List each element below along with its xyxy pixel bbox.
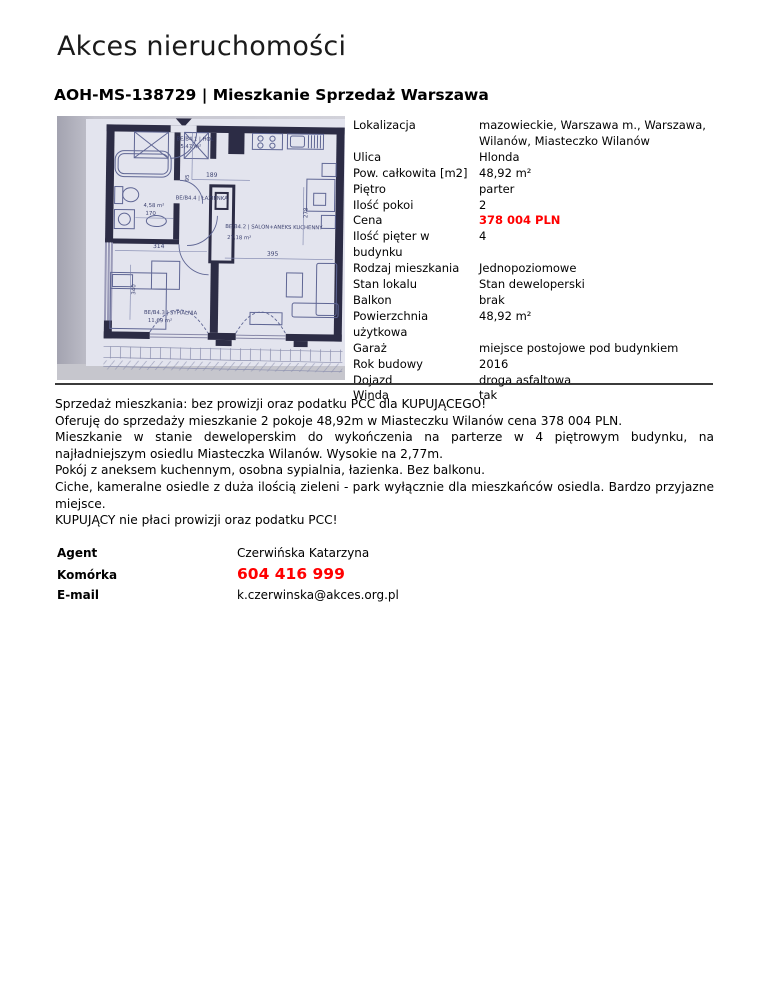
- detail-row: Rodzaj mieszkania Jednopoziomowe: [353, 261, 713, 277]
- detail-value: 2016: [479, 357, 713, 373]
- detail-value: brak: [479, 293, 713, 309]
- svg-text:95: 95: [185, 174, 191, 182]
- description: Sprzedaż mieszkania: bez prowizji oraz p…: [55, 396, 714, 529]
- detail-label: Ilość pokoi: [353, 198, 479, 214]
- detail-value: Jednopoziomowe: [479, 261, 713, 277]
- window-left: [104, 242, 113, 320]
- room-area-salon: 27,18 m²: [227, 234, 251, 241]
- details-table: Lokalizacja mazowieckie, Warszawa m., Wa…: [345, 116, 713, 404]
- agent-email-label: E-mail: [57, 588, 237, 602]
- page-title: AOH-MS-138729 | Mieszkanie Sprzedaż Wars…: [54, 86, 489, 104]
- detail-value: 2: [479, 198, 713, 214]
- detail-label: Rok budowy: [353, 357, 479, 373]
- description-paragraph: Pokój z aneksem kuchennym, osobna sypial…: [55, 462, 714, 479]
- detail-row: Piętro parter: [353, 182, 713, 198]
- detail-label: Ilość pięter w budynku: [353, 229, 479, 261]
- detail-row: Ilość pięter w budynku 4: [353, 229, 713, 261]
- detail-label: Stan lokalu: [353, 277, 479, 293]
- detail-label: Cena: [353, 213, 479, 229]
- detail-label: Ulica: [353, 150, 479, 166]
- detail-row: Lokalizacja mazowieckie, Warszawa m., Wa…: [353, 118, 713, 150]
- detail-label: Garaż: [353, 341, 479, 357]
- room-label-lazienka: BE/B4.4 | ŁAZIENKA: [176, 195, 229, 202]
- detail-value: droga asfaltowa: [479, 373, 713, 389]
- room-area-sypialnia: 11,69 m²: [148, 317, 172, 324]
- detail-row: Garaż miejsce postojowe pod budynkiem: [353, 341, 713, 357]
- svg-text:314: 314: [153, 243, 165, 250]
- svg-text:395: 395: [267, 251, 279, 258]
- content-row: 189 95 170 314 395 340 278 BE/B4.1 | HOL…: [57, 116, 713, 404]
- floorplan-svg: 189 95 170 314 395 340 278 BE/B4.1 | HOL…: [57, 116, 345, 380]
- detail-row: Ilość pokoi 2: [353, 198, 713, 214]
- description-paragraph: Mieszkanie w stanie deweloperskim do wyk…: [55, 429, 714, 462]
- detail-row: Pow. całkowita [m2] 48,92 m²: [353, 166, 713, 182]
- svg-text:340: 340: [131, 284, 137, 295]
- detail-value: Hlonda: [479, 150, 713, 166]
- room-label-sypialnia: BE/B4.3 | SYPIALNIA: [144, 310, 198, 317]
- agent-name-value: Czerwińska Katarzyna: [237, 546, 369, 560]
- description-paragraph: Oferuję do sprzedaży mieszkanie 2 pokoje…: [55, 413, 714, 430]
- detail-value: parter: [479, 182, 713, 198]
- detail-row: Rok budowy 2016: [353, 357, 713, 373]
- detail-value: 4: [479, 229, 713, 261]
- description-paragraph: Ciche, kameralne osiedle z duża ilością …: [55, 479, 714, 512]
- detail-value: 48,92 m²: [479, 166, 713, 182]
- detail-value: 48,92 m²: [479, 309, 713, 341]
- detail-row: Balkon brak: [353, 293, 713, 309]
- agent-email-row: E-mail k.czerwinska@akces.org.pl: [57, 588, 399, 602]
- detail-label: Lokalizacja: [353, 118, 479, 150]
- room-area-lazienka: 4,58 m²: [144, 202, 165, 209]
- detail-row: Powierzchnia użytkowa 48,92 m²: [353, 309, 713, 341]
- description-paragraph: Sprzedaż mieszkania: bez prowizji oraz p…: [55, 396, 714, 413]
- svg-text:189: 189: [206, 172, 218, 179]
- agent-phone-row: Komórka 604 416 999: [57, 565, 399, 583]
- detail-row: Dojazd droga asfaltowa: [353, 373, 713, 389]
- detail-label: Powierzchnia użytkowa: [353, 309, 479, 341]
- detail-label: Piętro: [353, 182, 479, 198]
- room-area-hol: 5,47 m²: [180, 143, 201, 150]
- agent-section: Agent Czerwińska Katarzyna Komórka 604 4…: [57, 546, 399, 607]
- detail-value: miejsce postojowe pod budynkiem: [479, 341, 713, 357]
- detail-label: Rodzaj mieszkania: [353, 261, 479, 277]
- detail-label: Dojazd: [353, 373, 479, 389]
- agency-name: Akces nieruchomości: [57, 31, 346, 62]
- agent-email-value: k.czerwinska@akces.org.pl: [237, 588, 399, 602]
- detail-value: mazowieckie, Warszawa m., Warszawa, Wila…: [479, 118, 713, 150]
- svg-text:278: 278: [303, 207, 309, 218]
- room-label-hol: BE/B4.1 | HOL: [176, 136, 213, 143]
- agent-phone-value: 604 416 999: [237, 565, 345, 583]
- agent-phone-label: Komórka: [57, 568, 237, 582]
- floorplan-image: 189 95 170 314 395 340 278 BE/B4.1 | HOL…: [57, 116, 345, 380]
- detail-label: Balkon: [353, 293, 479, 309]
- detail-value: Stan deweloperski: [479, 277, 713, 293]
- price-value: 378 004 PLN: [479, 213, 713, 229]
- detail-label: Pow. całkowita [m2]: [353, 166, 479, 182]
- detail-row: Ulica Hlonda: [353, 150, 713, 166]
- detail-row-price: Cena 378 004 PLN: [353, 213, 713, 229]
- agent-row: Agent Czerwińska Katarzyna: [57, 546, 399, 560]
- detail-row: Stan lokalu Stan deweloperski: [353, 277, 713, 293]
- listing-page: Akces nieruchomości AOH-MS-138729 | Mies…: [0, 0, 768, 994]
- svg-text:170: 170: [145, 211, 156, 217]
- divider: [55, 383, 713, 385]
- agent-name-label: Agent: [57, 546, 237, 560]
- description-paragraph: KUPUJĄCY nie płaci prowizji oraz podatku…: [55, 512, 714, 529]
